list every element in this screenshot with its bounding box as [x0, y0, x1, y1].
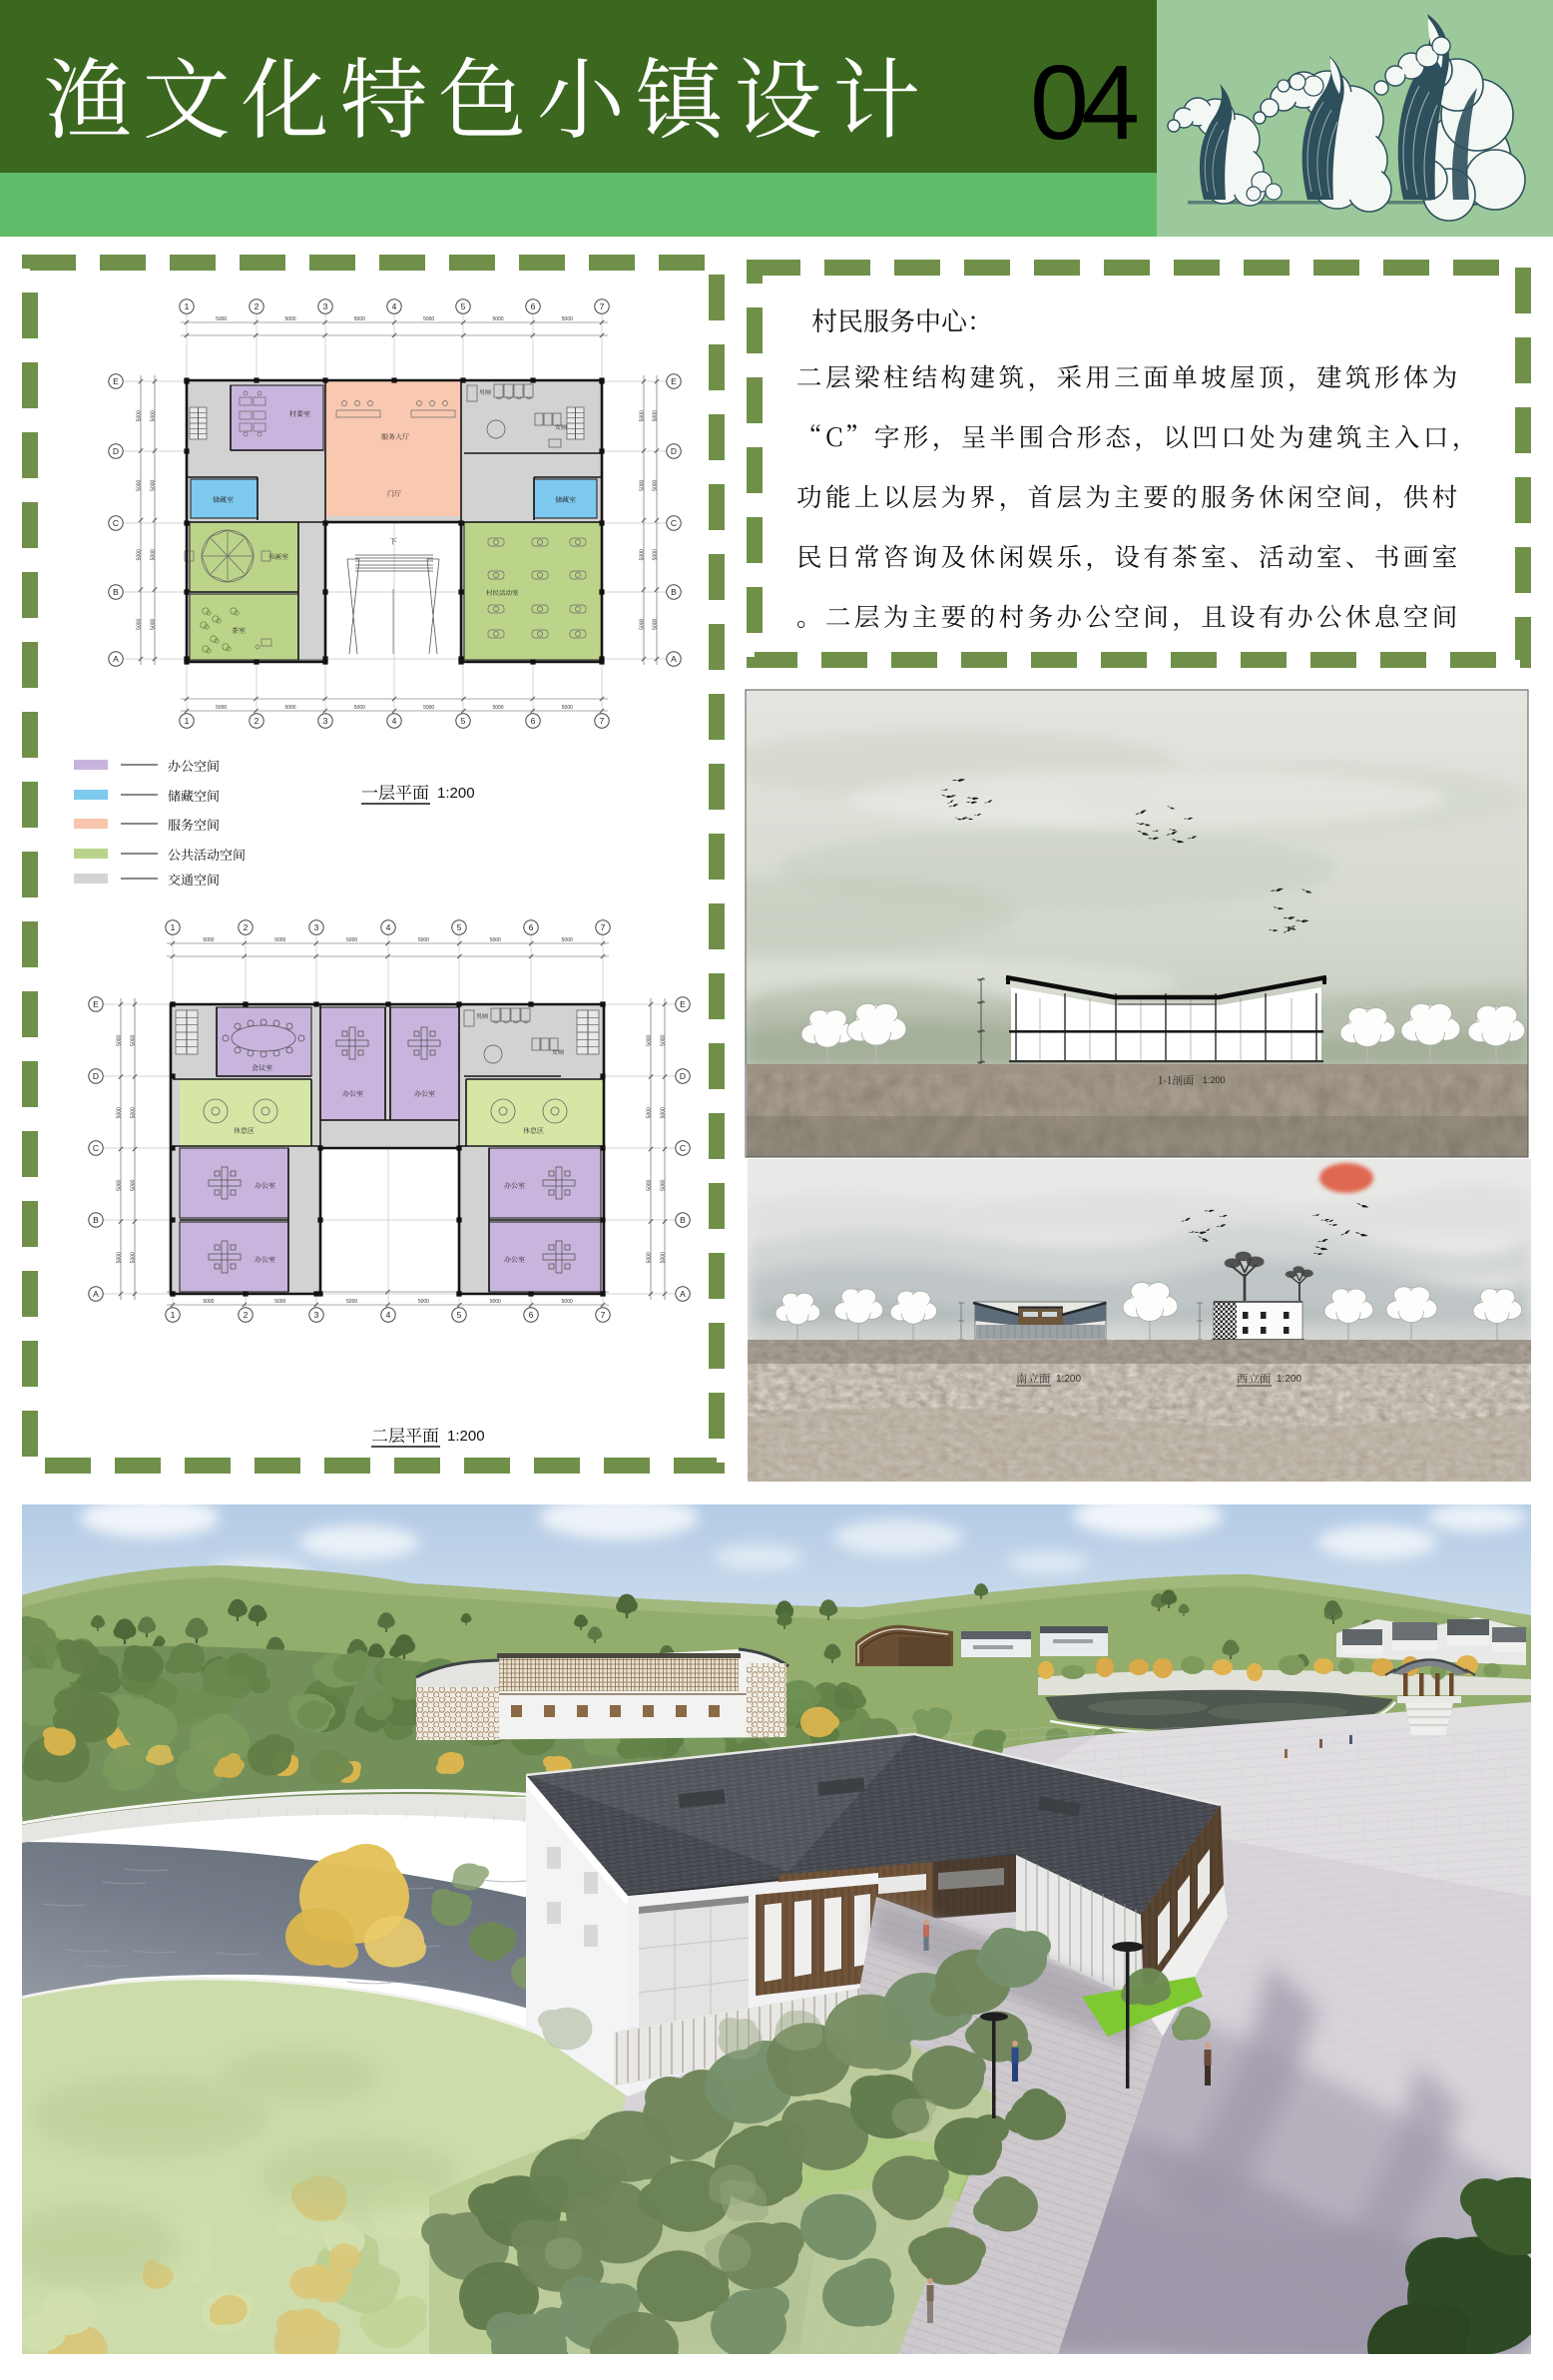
svg-text:5000: 5000	[562, 937, 573, 943]
svg-text:5000: 5000	[203, 1299, 214, 1305]
svg-text:5000: 5000	[647, 1034, 653, 1045]
svg-text:5000: 5000	[274, 1299, 285, 1305]
svg-text:5000: 5000	[562, 1299, 573, 1305]
svg-text:7: 7	[600, 716, 605, 726]
svg-text:5000: 5000	[203, 937, 214, 943]
svg-text:3: 3	[314, 1310, 319, 1320]
svg-text:1: 1	[185, 716, 190, 726]
svg-text:E: E	[93, 999, 99, 1009]
svg-text:5000: 5000	[151, 618, 157, 629]
svg-text:1:200: 1:200	[1203, 1075, 1226, 1085]
svg-text:D: D	[671, 446, 677, 456]
svg-text:5000: 5000	[423, 316, 434, 322]
svg-text:7: 7	[601, 1310, 606, 1320]
svg-text:A: A	[93, 1289, 99, 1299]
svg-text:5000: 5000	[562, 316, 573, 322]
svg-text:5000: 5000	[418, 1299, 429, 1305]
svg-text:E: E	[680, 999, 686, 1009]
svg-text:5000: 5000	[117, 1179, 123, 1190]
svg-text:5000: 5000	[653, 549, 659, 560]
svg-text:5000: 5000	[131, 1179, 137, 1190]
svg-text:4: 4	[386, 1310, 391, 1320]
svg-text:04: 04	[1030, 44, 1137, 162]
svg-text:A: A	[113, 654, 119, 664]
svg-text:5000: 5000	[640, 549, 646, 560]
svg-text:5000: 5000	[117, 1107, 123, 1118]
svg-text:1: 1	[171, 1310, 176, 1320]
svg-text:5000: 5000	[661, 1034, 667, 1045]
svg-text:2: 2	[255, 301, 259, 311]
svg-text:5000: 5000	[131, 1034, 137, 1045]
svg-text:7: 7	[600, 301, 605, 311]
svg-text:5000: 5000	[423, 705, 434, 711]
svg-text:5000: 5000	[653, 479, 659, 490]
svg-text:5: 5	[461, 301, 466, 311]
svg-text:C: C	[680, 1143, 686, 1153]
svg-text:5000: 5000	[647, 1252, 653, 1263]
svg-text:5000: 5000	[117, 1252, 123, 1263]
svg-text:5000: 5000	[647, 1179, 653, 1190]
svg-text:D: D	[93, 1071, 99, 1081]
svg-text:5: 5	[461, 716, 466, 726]
svg-text:C: C	[671, 518, 677, 528]
svg-text:5000: 5000	[490, 1299, 501, 1305]
svg-text:E: E	[671, 376, 677, 386]
svg-text:D: D	[680, 1071, 686, 1081]
svg-text:4: 4	[386, 922, 391, 932]
svg-text:5: 5	[457, 922, 462, 932]
svg-text:A: A	[680, 1289, 686, 1299]
svg-text:5000: 5000	[346, 937, 357, 943]
svg-text:5000: 5000	[284, 705, 295, 711]
svg-text:6: 6	[529, 1310, 534, 1320]
svg-text:E: E	[113, 376, 119, 386]
svg-text:1:200: 1:200	[1277, 1374, 1301, 1385]
svg-text:B: B	[113, 587, 119, 597]
svg-text:5000: 5000	[274, 937, 285, 943]
svg-text:5000: 5000	[137, 479, 143, 490]
svg-text:5: 5	[457, 1310, 462, 1320]
svg-text:C: C	[93, 1143, 99, 1153]
svg-text:C: C	[113, 518, 119, 528]
svg-text:5000: 5000	[640, 479, 646, 490]
svg-text:B: B	[671, 587, 677, 597]
svg-text:5000: 5000	[151, 479, 157, 490]
svg-text:3: 3	[323, 716, 328, 726]
svg-text:5000: 5000	[117, 1034, 123, 1045]
svg-text:3: 3	[314, 922, 319, 932]
svg-text:1: 1	[185, 301, 190, 311]
svg-text:D: D	[113, 446, 119, 456]
svg-text:5000: 5000	[131, 1107, 137, 1118]
svg-text:5000: 5000	[354, 316, 365, 322]
svg-text:5000: 5000	[131, 1252, 137, 1263]
svg-text:5000: 5000	[418, 937, 429, 943]
svg-text:5000: 5000	[640, 410, 646, 421]
svg-text:3: 3	[323, 301, 328, 311]
svg-text:5000: 5000	[490, 937, 501, 943]
svg-text:1: 1	[171, 922, 176, 932]
svg-text:5000: 5000	[216, 705, 227, 711]
svg-text:5000: 5000	[562, 705, 573, 711]
svg-text:A: A	[671, 654, 677, 664]
svg-text:5000: 5000	[661, 1252, 667, 1263]
svg-text:B: B	[680, 1215, 686, 1225]
svg-text:5000: 5000	[653, 410, 659, 421]
svg-text:5000: 5000	[137, 549, 143, 560]
svg-text:5000: 5000	[284, 316, 295, 322]
svg-text:5000: 5000	[151, 549, 157, 560]
svg-text:5000: 5000	[640, 618, 646, 629]
svg-text:5000: 5000	[653, 618, 659, 629]
svg-text:5000: 5000	[216, 316, 227, 322]
svg-text:5000: 5000	[346, 1299, 357, 1305]
svg-text:5000: 5000	[354, 705, 365, 711]
svg-text:B: B	[93, 1215, 99, 1225]
svg-text:6: 6	[531, 301, 536, 311]
svg-text:5000: 5000	[661, 1107, 667, 1118]
svg-text:5000: 5000	[151, 410, 157, 421]
svg-text:6: 6	[531, 716, 536, 726]
svg-text:5000: 5000	[137, 410, 143, 421]
svg-text:1:200: 1:200	[437, 785, 475, 802]
svg-text:2: 2	[255, 716, 259, 726]
svg-text:5000: 5000	[492, 705, 503, 711]
svg-text:5000: 5000	[492, 316, 503, 322]
svg-text:5000: 5000	[661, 1179, 667, 1190]
svg-text:1:200: 1:200	[1056, 1374, 1081, 1385]
svg-text:1:200: 1:200	[447, 1428, 485, 1445]
svg-text:5000: 5000	[137, 618, 143, 629]
svg-text:7: 7	[601, 922, 606, 932]
svg-text:4: 4	[392, 301, 397, 311]
svg-text:2: 2	[244, 922, 249, 932]
svg-text:2: 2	[244, 1310, 249, 1320]
svg-text:4: 4	[392, 716, 397, 726]
svg-text:6: 6	[529, 922, 534, 932]
svg-text:5000: 5000	[647, 1107, 653, 1118]
